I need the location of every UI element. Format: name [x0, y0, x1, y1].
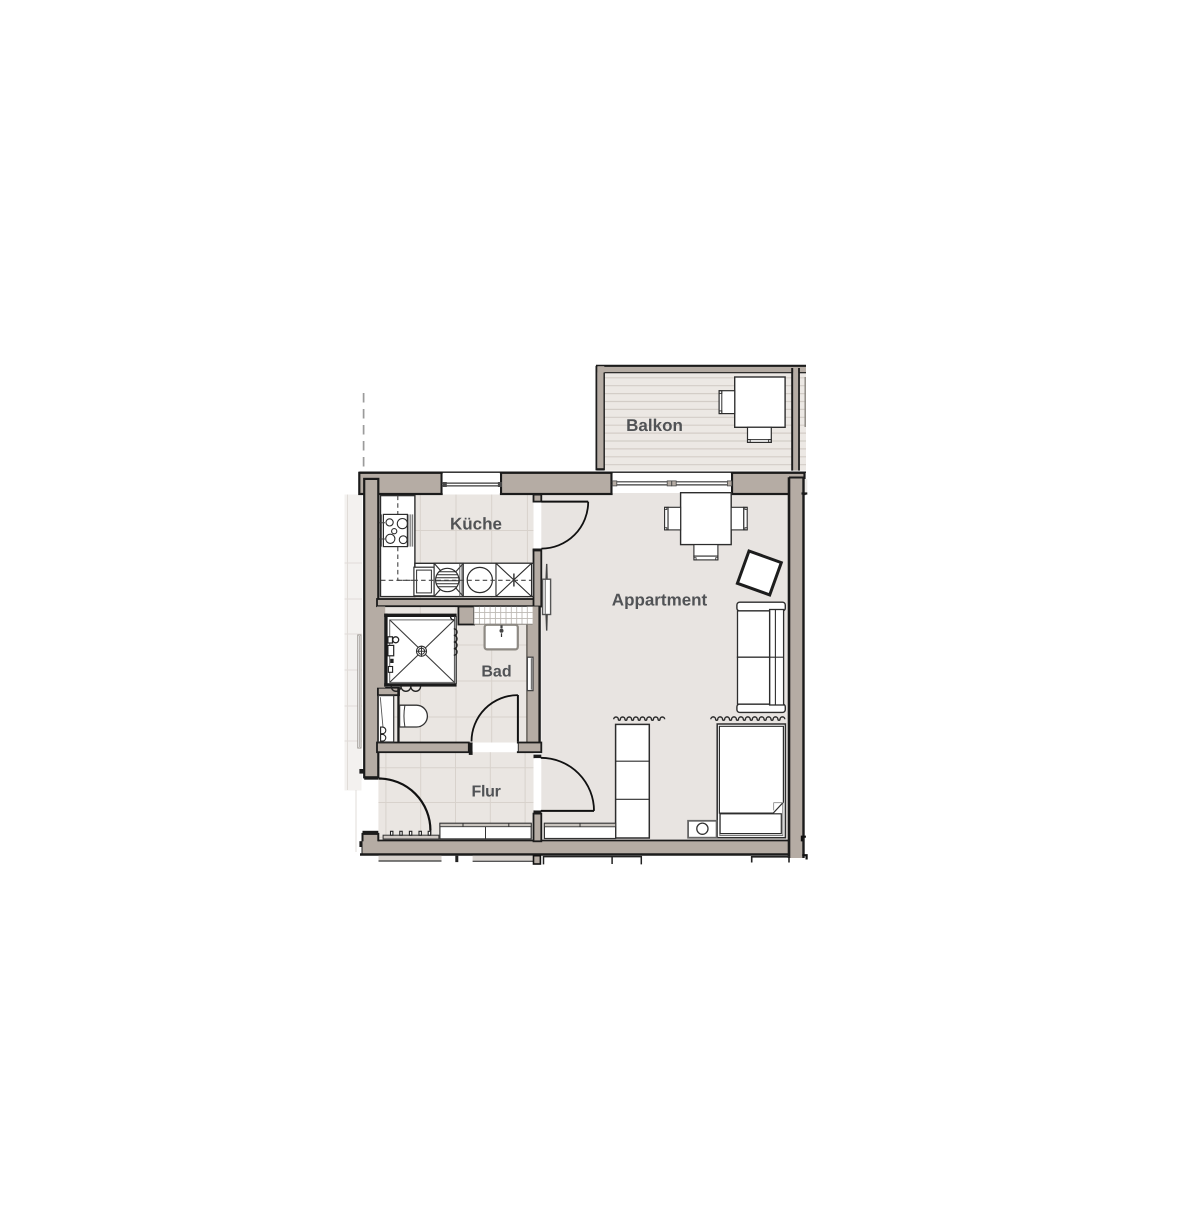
svg-text:Appartment: Appartment — [612, 590, 708, 609]
svg-text:Bad: Bad — [481, 663, 511, 680]
svg-text:Balkon: Balkon — [626, 416, 683, 435]
svg-text:Flur: Flur — [471, 783, 500, 800]
svg-text:Küche: Küche — [450, 514, 502, 533]
